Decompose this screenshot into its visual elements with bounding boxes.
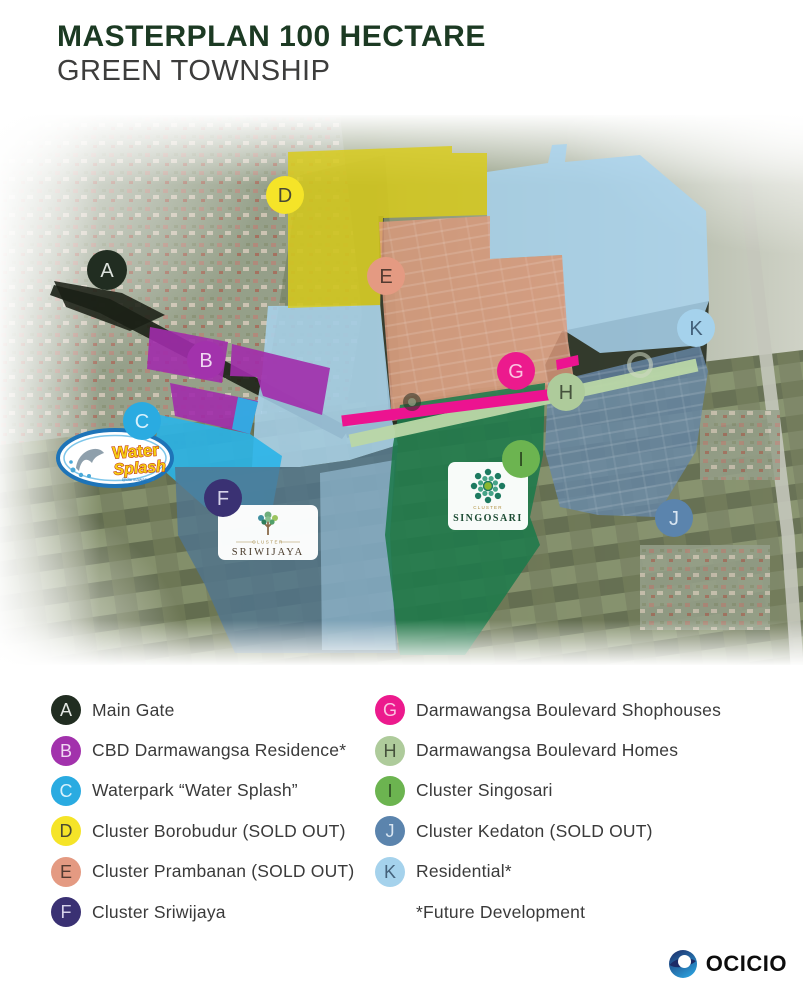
svg-text:D: D	[278, 185, 292, 207]
legend-marker-c: C	[51, 776, 81, 806]
legend-marker-i: I	[375, 776, 405, 806]
sriwijaya-cluster-label: CLUSTER	[252, 540, 284, 545]
legend-item-prambanan: E Cluster Prambanan (SOLD OUT)	[51, 852, 354, 892]
map-marker-main-gate: A	[87, 250, 127, 290]
page-subtitle: GREEN TOWNSHIP	[57, 54, 486, 88]
map-marker-residential: K	[677, 309, 715, 347]
svg-text:C: C	[135, 411, 149, 433]
legend-column-right: G Darmawangsa Boulevard Shophouses H Dar…	[375, 690, 721, 932]
map-marker-cbd: B	[187, 341, 225, 379]
legend-marker-h: H	[375, 736, 405, 766]
roundabout-west-center	[408, 398, 416, 406]
legend-footnote-row: *Future Development	[375, 892, 721, 932]
masterplan-map: CLUSTER SRIWIJAYA CLUSTER SINGOSARI	[0, 115, 803, 665]
svg-text:E: E	[379, 266, 392, 288]
legend-footnote: *Future Development	[416, 902, 585, 923]
map-marker-kedaton: J	[655, 499, 693, 537]
svg-text:J: J	[669, 508, 679, 530]
legend-item-singosari: I Cluster Singosari	[375, 771, 721, 811]
map-marker-homes: H	[547, 373, 585, 411]
legend-marker-b: B	[51, 736, 81, 766]
map-marker-prambanan: E	[367, 257, 405, 295]
brand-name: OCICIO	[706, 951, 787, 977]
water-splash-handle: @darmawangsa	[122, 477, 155, 482]
map-marker-singosari: I	[502, 440, 540, 478]
satellite-houses-southeast	[640, 545, 770, 630]
legend-marker-f: F	[51, 897, 81, 927]
legend-marker-a: A	[51, 695, 81, 725]
legend-item-borobudur: D Cluster Borobudur (SOLD OUT)	[51, 811, 354, 851]
brand-footer: OCICIO	[667, 948, 787, 980]
svg-text:A: A	[100, 260, 114, 282]
legend-marker-k: K	[375, 857, 405, 887]
legend-marker-j: J	[375, 816, 405, 846]
water-splash-logo: Water Splash @darmawangsa	[58, 430, 172, 486]
svg-text:B: B	[199, 350, 212, 372]
legend-item-residential: K Residential*	[375, 852, 721, 892]
legend-marker-g: G	[375, 695, 405, 725]
map-canvas: CLUSTER SRIWIJAYA CLUSTER SINGOSARI	[0, 115, 803, 665]
singosari-mandala-icon	[471, 469, 505, 503]
svg-text:G: G	[508, 361, 524, 383]
legend-marker-d: D	[51, 816, 81, 846]
satellite-houses-east	[700, 410, 780, 480]
legend-item-main-gate: A Main Gate	[51, 690, 354, 730]
legend-footnote-spacer	[375, 897, 405, 927]
svg-text:F: F	[217, 488, 229, 510]
svg-text:H: H	[559, 382, 573, 404]
ocicio-logo-icon	[667, 948, 699, 980]
map-marker-borobudur: D	[266, 176, 304, 214]
singosari-name-label: SINGOSARI	[453, 513, 523, 524]
map-marker-shophouses: G	[497, 352, 535, 390]
svg-text:I: I	[518, 449, 524, 471]
legend-item-shophouses: G Darmawangsa Boulevard Shophouses	[375, 690, 721, 730]
page-title: MASTERPLAN 100 HECTARE	[57, 20, 486, 54]
legend-item-homes: H Darmawangsa Boulevard Homes	[375, 730, 721, 770]
legend-item-cbd: B CBD Darmawangsa Residence*	[51, 730, 354, 770]
legend-item-sriwijaya: F Cluster Sriwijaya	[51, 892, 354, 932]
map-marker-waterpark: C	[123, 402, 161, 440]
fade-bottom	[0, 620, 803, 665]
legend-item-kedaton: J Cluster Kedaton (SOLD OUT)	[375, 811, 721, 851]
map-marker-sriwijaya: F	[204, 479, 242, 517]
masterplan-poster: MASTERPLAN 100 HECTARE GREEN TOWNSHIP	[0, 0, 803, 1000]
singosari-cluster-label: CLUSTER	[473, 505, 502, 510]
header: MASTERPLAN 100 HECTARE GREEN TOWNSHIP	[57, 20, 486, 88]
legend-column-left: A Main Gate B CBD Darmawangsa Residence*…	[51, 690, 354, 932]
svg-text:K: K	[689, 318, 703, 340]
legend-item-waterpark: C Waterpark “Water Splash”	[51, 771, 354, 811]
legend-marker-e: E	[51, 857, 81, 887]
sriwijaya-name-label: SRIWIJAYA	[232, 547, 304, 558]
